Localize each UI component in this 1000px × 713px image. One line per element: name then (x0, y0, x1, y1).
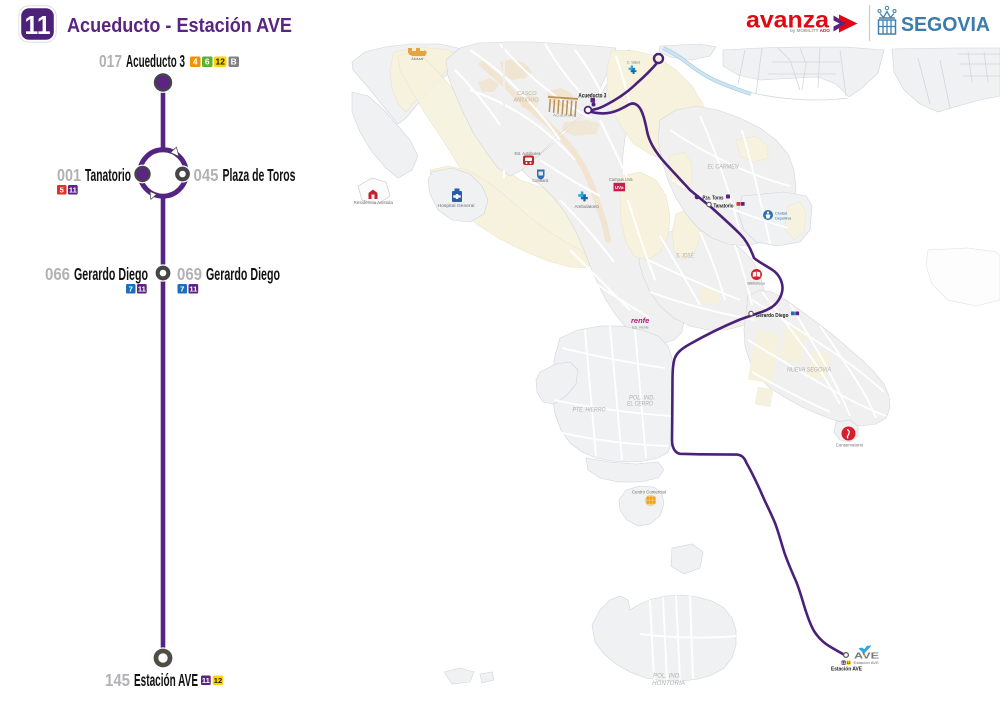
svg-text:Tanatorio: Tanatorio (714, 203, 734, 209)
svg-text:PTE. HIERRO: PTE. HIERRO (573, 407, 606, 414)
svg-text:Gerardo Diego: Gerardo Diego (74, 264, 148, 284)
svg-text:Est. Renfe: Est. Renfe (632, 326, 649, 330)
svg-text:Pza. Toros: Pza. Toros (703, 195, 724, 201)
svg-text:C. Salud: C. Salud (627, 61, 640, 65)
svg-text:Acueducto 3: Acueducto 3 (126, 51, 185, 71)
svg-text:S. JOSÉ: S. JOSÉ (676, 253, 694, 260)
svg-text:ANTIGUO: ANTIGUO (513, 98, 539, 104)
svg-text:Ciudad: Ciudad (775, 212, 787, 216)
svg-text:Tanatorio: Tanatorio (85, 165, 131, 185)
svg-text:12: 12 (214, 676, 222, 685)
svg-text:by MOBILITY ADO: by MOBILITY ADO (790, 28, 830, 33)
svg-text:Hospital General: Hospital General (438, 203, 475, 208)
svg-text:11: 11 (138, 284, 147, 293)
svg-text:Ambulatorio: Ambulatorio (575, 204, 600, 209)
svg-text:Campus UVa: Campus UVa (609, 177, 633, 182)
svg-text:7: 7 (129, 284, 133, 293)
svg-text:Deportiva: Deportiva (775, 217, 792, 221)
svg-text:B: B (231, 57, 237, 67)
svg-text:017: 017 (99, 51, 122, 71)
svg-text:Acueducto 3: Acueducto 3 (578, 94, 607, 100)
svg-text:Centro Comercial: Centro Comercial (632, 490, 666, 495)
svg-text:EL CARMEN: EL CARMEN (708, 164, 739, 171)
svg-text:Biblioteca: Biblioteca (747, 282, 765, 286)
svg-text:renfe: renfe (631, 316, 649, 325)
svg-text:12: 12 (216, 57, 226, 67)
svg-text:Comisaría: Comisaría (532, 178, 549, 183)
svg-text:6: 6 (205, 57, 210, 67)
svg-text:069: 069 (177, 264, 202, 284)
svg-text:Estación AVE: Estación AVE (831, 666, 862, 672)
svg-text:Est. Autobuses: Est. Autobuses (515, 151, 541, 156)
svg-text:11: 11 (189, 284, 198, 293)
svg-text:CASCO: CASCO (517, 91, 537, 97)
svg-text:Acueducto - Estación AVE: Acueducto - Estación AVE (67, 14, 292, 37)
svg-text:NUEVA SEGOVIA: NUEVA SEGOVIA (787, 367, 831, 374)
svg-text:HONTORIA: HONTORIA (652, 681, 685, 687)
svg-text:11: 11 (25, 10, 51, 40)
svg-text:045: 045 (194, 165, 219, 185)
svg-text:Gerardo Diego: Gerardo Diego (756, 313, 789, 319)
svg-text:Residencia Asistida: Residencia Asistida (354, 200, 394, 205)
svg-text:SEGOVIA: SEGOVIA (901, 14, 990, 36)
svg-text:Estación AVE: Estación AVE (134, 670, 198, 690)
svg-text:Estación AVE: Estación AVE (854, 660, 880, 665)
svg-text:7: 7 (180, 284, 184, 293)
svg-text:Acueducto: Acueducto (553, 114, 575, 118)
svg-text:UVa: UVa (615, 185, 624, 190)
svg-text:11: 11 (202, 676, 211, 685)
svg-text:Conservatorio: Conservatorio (836, 443, 864, 448)
svg-text:POL. IND.: POL. IND. (653, 674, 681, 680)
svg-text:11: 11 (69, 185, 78, 194)
svg-text:12: 12 (847, 661, 851, 665)
svg-text:Gerardo Diego: Gerardo Diego (206, 264, 280, 284)
svg-text:066: 066 (45, 264, 70, 284)
svg-text:Plaza de Toros: Plaza de Toros (223, 165, 296, 185)
svg-text:145: 145 (105, 670, 130, 690)
svg-text:EL CERRO: EL CERRO (627, 402, 653, 408)
svg-text:11: 11 (842, 661, 846, 665)
svg-text:4: 4 (193, 57, 198, 67)
svg-text:Alcázar: Alcázar (411, 56, 424, 61)
svg-text:001: 001 (57, 165, 81, 185)
